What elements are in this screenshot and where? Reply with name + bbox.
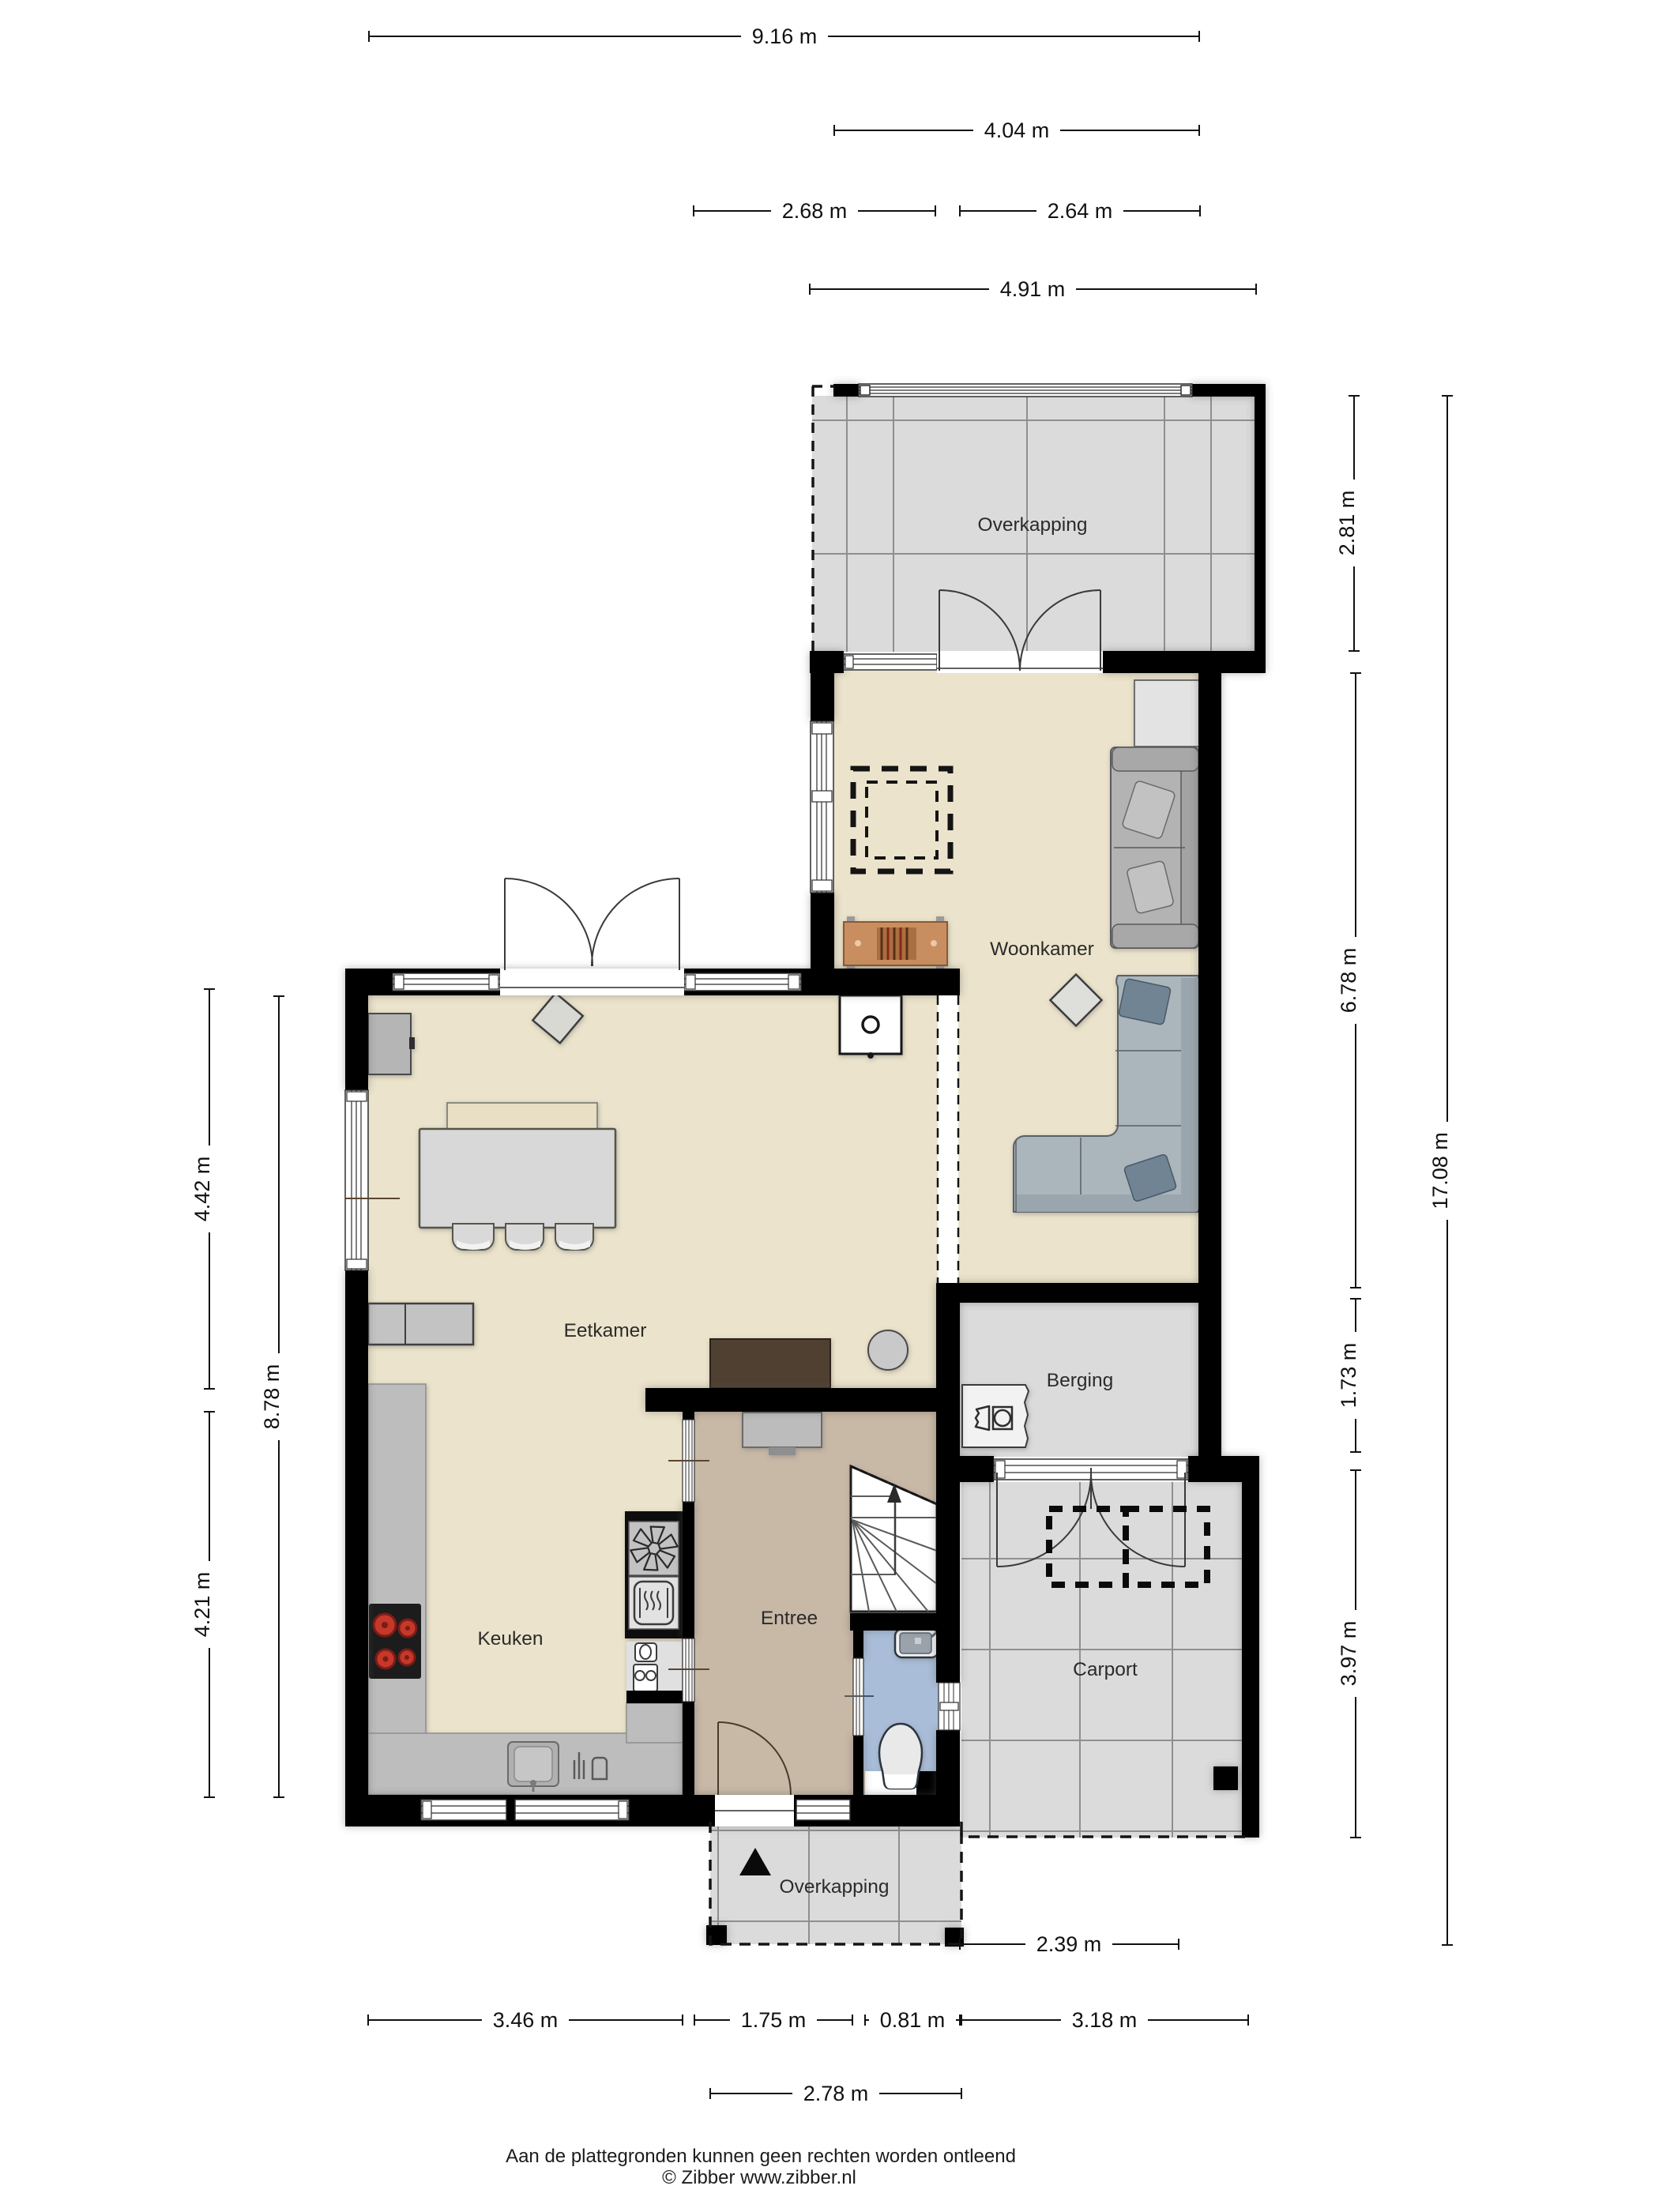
svg-text:Woonkamer: Woonkamer [990,939,1094,960]
svg-text:4.04 m: 4.04 m [984,118,1050,142]
svg-text:© Zibber www.zibber.nl: © Zibber www.zibber.nl [662,2167,856,2188]
svg-text:8.78 m: 8.78 m [260,1364,284,1430]
svg-text:17.08 m: 17.08 m [1428,1132,1452,1209]
svg-text:6.78 m: 6.78 m [1337,948,1360,1014]
svg-text:Carport: Carport [1073,1659,1138,1680]
svg-text:Aan de plattegronden kunnen ge: Aan de plattegronden kunnen geen rechten… [506,2146,1016,2167]
svg-text:2.81 m: 2.81 m [1335,491,1359,556]
svg-text:1.75 m: 1.75 m [741,2008,807,2032]
svg-text:Berging: Berging [1047,1370,1113,1391]
svg-text:Overkapping: Overkapping [780,1876,890,1898]
svg-text:4.91 m: 4.91 m [1000,277,1066,301]
svg-text:2.68 m: 2.68 m [782,199,848,223]
svg-text:3.18 m: 3.18 m [1072,2008,1138,2032]
svg-text:4.42 m: 4.42 m [190,1157,214,1222]
svg-text:3.46 m: 3.46 m [493,2008,559,2032]
svg-text:2.39 m: 2.39 m [1036,1932,1102,1956]
svg-text:4.21 m: 4.21 m [190,1572,214,1638]
svg-text:Keuken: Keuken [477,1628,543,1650]
svg-text:1.73 m: 1.73 m [1337,1343,1360,1409]
svg-text:2.64 m: 2.64 m [1048,199,1113,223]
svg-text:Eetkamer: Eetkamer [564,1320,647,1341]
svg-text:Entree: Entree [761,1608,818,1629]
svg-text:0.81 m: 0.81 m [880,2008,946,2032]
svg-text:9.16 m: 9.16 m [752,24,818,48]
svg-text:2.78 m: 2.78 m [803,2082,869,2105]
svg-text:Overkapping: Overkapping [978,514,1088,536]
svg-text:3.97 m: 3.97 m [1337,1621,1360,1687]
